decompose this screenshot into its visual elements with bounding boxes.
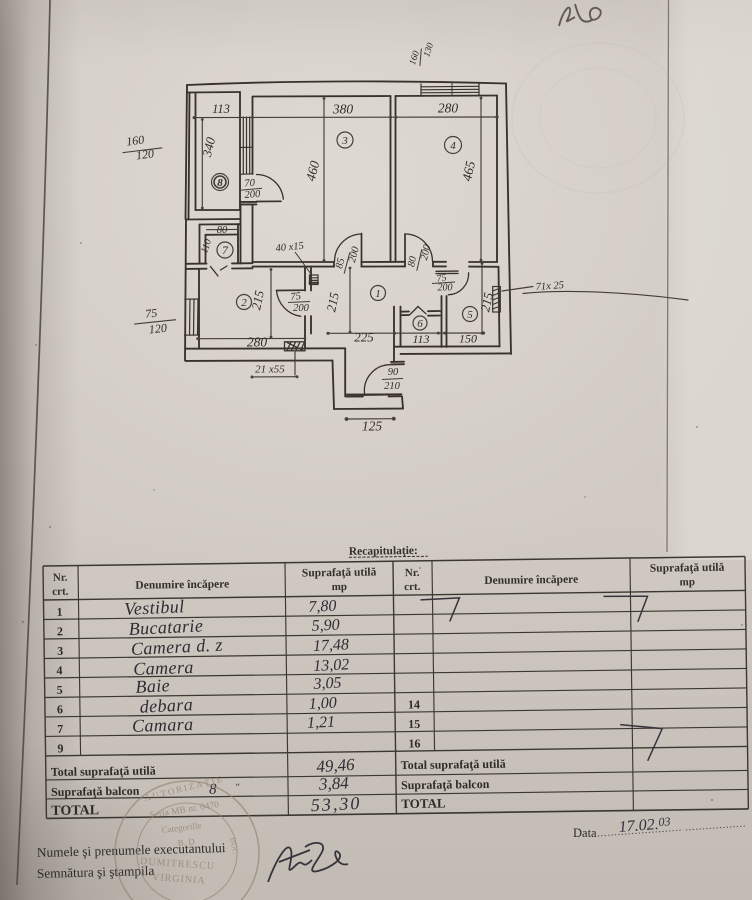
svg-text:4: 4: [450, 140, 456, 152]
svg-text:90: 90: [388, 367, 399, 378]
svg-text:9: 9: [57, 741, 63, 755]
svg-text:80: 80: [217, 225, 228, 236]
svg-text:TOTAL: TOTAL: [51, 803, 99, 819]
svg-text:6: 6: [57, 702, 63, 716]
svg-text:160: 160: [125, 132, 145, 148]
svg-text:B, D: B, D: [177, 836, 195, 848]
svg-text:75: 75: [290, 291, 302, 303]
svg-text:3: 3: [341, 135, 348, 147]
svg-text:5: 5: [57, 683, 63, 697]
svg-text:15: 15: [408, 717, 420, 731]
svg-text:13,02: 13,02: [313, 656, 350, 675]
svg-text:1,00: 1,00: [308, 695, 337, 713]
svg-text:150: 150: [459, 332, 477, 346]
svg-text:380: 380: [332, 102, 354, 117]
svg-text:14: 14: [408, 697, 420, 711]
svg-text:Denumire încăpere: Denumire încăpere: [135, 578, 229, 591]
svg-text:40 x15: 40 x15: [275, 241, 304, 255]
svg-text:Vestibul: Vestibul: [124, 596, 185, 619]
svg-text:113: 113: [412, 332, 429, 346]
svg-text:1,21: 1,21: [307, 714, 336, 732]
svg-text:21 x55: 21 x55: [255, 364, 285, 376]
svg-text:17,48: 17,48: [313, 636, 350, 655]
svg-text:215: 215: [248, 288, 267, 311]
svg-text:2: 2: [241, 297, 247, 309]
svg-text:200: 200: [244, 189, 261, 201]
svg-text:Recapitulaţie:: Recapitulaţie:: [349, 545, 418, 558]
svg-text:1: 1: [57, 605, 63, 619]
svg-text:Nr.: Nr.: [53, 572, 68, 584]
svg-text:5: 5: [467, 309, 473, 321]
svg-text:8: 8: [217, 177, 223, 189]
svg-text:Suprafaţă balcon: Suprafaţă balcon: [401, 777, 490, 792]
svg-text:53,30: 53,30: [310, 793, 361, 815]
svg-text:Numele şi prenumele executantu: Numele şi prenumele executantului: [37, 840, 226, 860]
svg-text:70: 70: [244, 178, 256, 190]
svg-text:465: 465: [459, 159, 478, 182]
svg-text:1: 1: [375, 288, 381, 300]
svg-text:Camera d. z: Camera d. z: [130, 635, 223, 659]
svg-text:Total suprafaţă utilă: Total suprafaţă utilă: [401, 757, 506, 772]
svg-text:3,05: 3,05: [312, 674, 342, 692]
svg-text:″: ″: [235, 782, 240, 793]
svg-text:Baie: Baie: [135, 675, 171, 697]
svg-text:TOTAL: TOTAL: [401, 796, 446, 812]
svg-text:125: 125: [362, 419, 383, 434]
svg-text:120: 120: [148, 321, 167, 337]
svg-text:5,90: 5,90: [311, 616, 340, 634]
svg-text:VIRGINIA: VIRGINIA: [152, 872, 206, 887]
svg-text:215: 215: [323, 290, 342, 313]
svg-text:7,80: 7,80: [308, 598, 337, 616]
svg-text:Nr.: Nr.: [405, 567, 420, 579]
svg-text:crt.: crt.: [52, 586, 69, 598]
svg-text:75: 75: [144, 306, 157, 321]
svg-text:200: 200: [438, 283, 453, 294]
svg-text:7: 7: [222, 243, 229, 257]
svg-text:Suprafaţă utilă: Suprafaţă utilă: [302, 566, 377, 579]
svg-text:Semnătura şi ştampila: Semnătura şi ştampila: [37, 863, 155, 881]
svg-text:16: 16: [408, 736, 420, 750]
svg-text:Categorille: Categorille: [161, 820, 202, 835]
svg-text:280: 280: [247, 335, 268, 350]
svg-text:6: 6: [417, 318, 423, 330]
svg-text:113: 113: [212, 102, 230, 116]
svg-text:crt.: crt.: [404, 581, 421, 593]
svg-text:7: 7: [57, 722, 63, 736]
svg-text:Data: Data: [573, 826, 597, 840]
svg-text:71x 25: 71x 25: [535, 280, 564, 293]
svg-text:210: 210: [384, 381, 401, 392]
svg-text:3: 3: [57, 644, 63, 658]
svg-text:4: 4: [56, 663, 62, 677]
svg-text:mp: mp: [332, 581, 347, 593]
svg-text:Denumire încăpere: Denumire încăpere: [484, 574, 578, 587]
svg-text:Total suprafaţă utilă: Total suprafaţă utilă: [51, 763, 156, 778]
svg-text:BUC: BUC: [228, 837, 240, 855]
svg-text:130: 130: [422, 42, 436, 59]
svg-text:460: 460: [303, 159, 323, 183]
svg-text:110: 110: [199, 238, 214, 255]
svg-text:17.02.03: 17.02.03: [618, 814, 671, 836]
svg-text:280: 280: [438, 101, 459, 116]
svg-text:225: 225: [354, 330, 374, 345]
svg-text:Suprafaţă utilă: Suprafaţă utilă: [650, 562, 725, 575]
svg-text:2: 2: [57, 624, 63, 638]
svg-text:Camara: Camara: [132, 714, 194, 736]
svg-text:3,84: 3,84: [317, 773, 349, 793]
svg-text:200: 200: [293, 303, 310, 314]
svg-text:mp: mp: [680, 576, 695, 588]
svg-text:Suprafaţă balcon: Suprafaţă balcon: [51, 784, 140, 799]
svg-text:340: 340: [199, 135, 219, 159]
